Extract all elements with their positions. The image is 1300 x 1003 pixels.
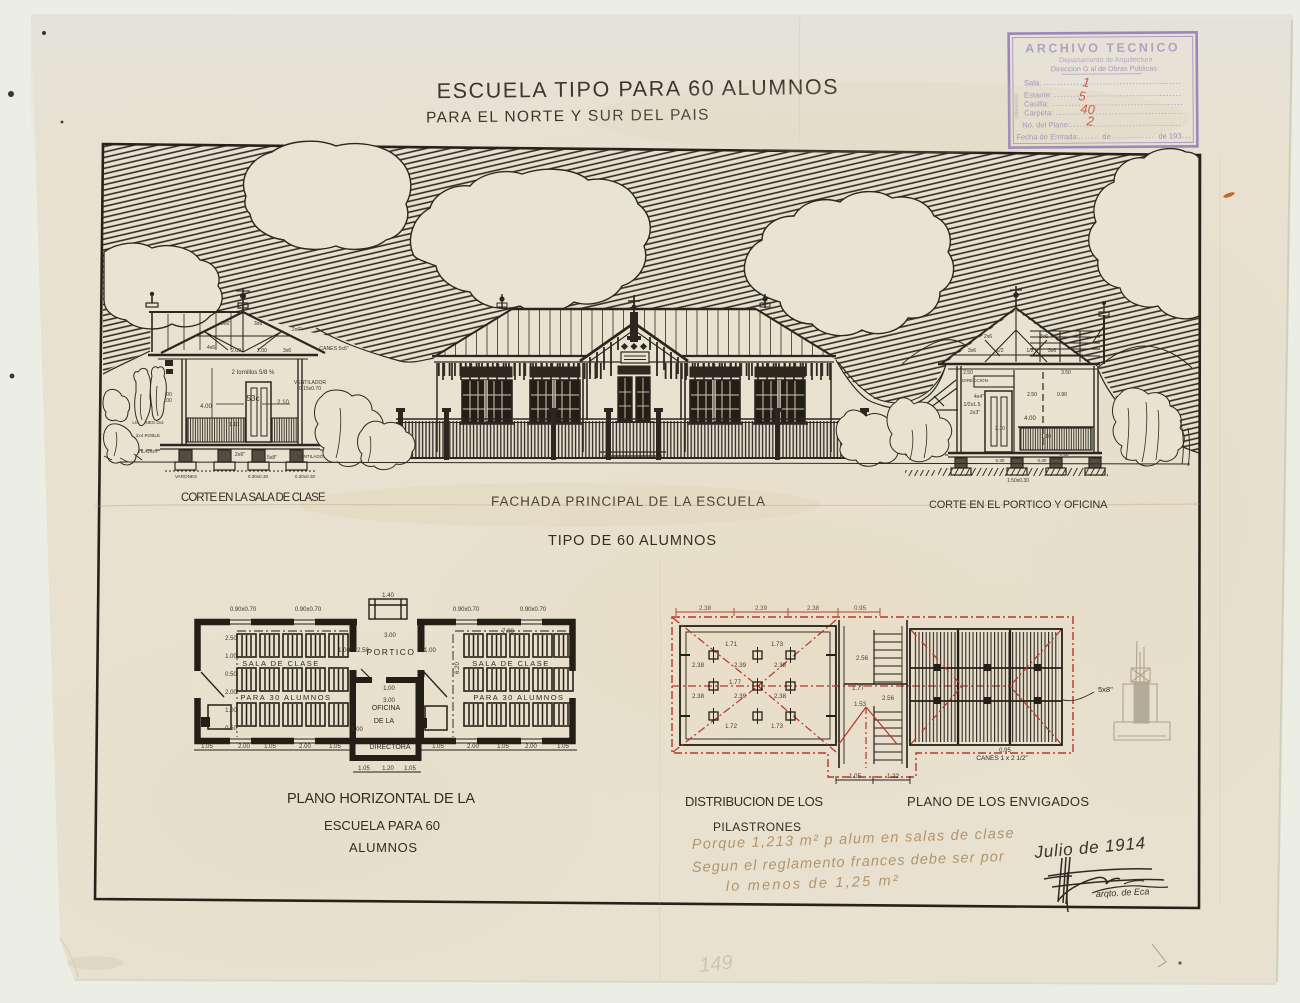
svg-text:1.00: 1.00 [225, 654, 237, 660]
svg-text:6.20: 6.20 [455, 662, 461, 674]
svg-text:149: 149 [698, 952, 733, 977]
svg-text:2.5x8": 2.5x8" [263, 455, 277, 461]
svg-text:0.15x0.70: 0.15x0.70 [299, 386, 321, 392]
svg-text:0.50: 0.50 [225, 726, 237, 732]
svg-text:CANES 5x6": CANES 5x6" [319, 346, 349, 352]
svg-text:2x3": 2x3" [970, 410, 980, 416]
svg-text:2.00: 2.00 [225, 690, 237, 696]
svg-text:0.90x0.70: 0.90x0.70 [453, 607, 480, 613]
svg-text:3x6: 3x6 [1048, 348, 1056, 354]
svg-text:2x4 ROBLE: 2x4 ROBLE [136, 433, 160, 438]
svg-text:2x6": 2x6" [292, 327, 302, 333]
svg-text:CANES 1 x 2 1/2": CANES 1 x 2 1/2" [976, 755, 1028, 762]
svg-text:OFICINA: OFICINA [372, 705, 401, 712]
svg-text:DIRECCION: DIRECCION [962, 378, 988, 383]
svg-text:1.00: 1.00 [338, 648, 350, 654]
svg-text:0.60: 0.60 [1060, 452, 1069, 457]
svg-text:3x6: 3x6 [968, 348, 976, 354]
svg-text:2.00: 2.00 [238, 744, 250, 750]
svg-text:1.72: 1.72 [725, 723, 738, 730]
svg-text:1.00: 1.00 [424, 648, 436, 654]
svg-text:1/2: 1/2 [996, 348, 1003, 354]
svg-text:2.38: 2.38 [807, 605, 820, 612]
svg-text:3.00: 3.00 [384, 633, 396, 639]
svg-text:0.95: 0.95 [854, 605, 867, 612]
svg-text:0.90x0.70: 0.90x0.70 [230, 607, 257, 613]
svg-text:0.90x0.70: 0.90x0.70 [295, 607, 322, 613]
svg-text:2.00: 2.00 [231, 348, 241, 354]
svg-text:PLANO HORIZONTAL DE LA: PLANO HORIZONTAL DE LA [287, 791, 477, 807]
svg-text:0.95: 0.95 [999, 748, 1011, 754]
svg-text:1.05: 1.05 [201, 744, 213, 750]
svg-text:1.05: 1.05 [264, 744, 276, 750]
svg-text:2x6": 2x6" [235, 452, 246, 458]
svg-text:2.56: 2.56 [882, 695, 895, 702]
svg-text:TIPO DE 60 ALUMNOS: TIPO DE 60 ALUMNOS [548, 533, 718, 549]
svg-text:2.10: 2.10 [277, 400, 289, 406]
svg-text:DIRECTORA: DIRECTORA [369, 744, 410, 751]
svg-text:DE LA: DE LA [374, 718, 395, 725]
svg-text:4.00: 4.00 [1024, 416, 1036, 422]
svg-text:2.50: 2.50 [1027, 392, 1037, 398]
svg-text:1.40: 1.40 [382, 593, 394, 599]
svg-text:PARA 30 ALUMNOS: PARA 30 ALUMNOS [473, 693, 564, 702]
svg-text:1.10: 1.10 [1041, 434, 1051, 440]
svg-text:4.00: 4.00 [200, 404, 212, 410]
svg-text:1.05: 1.05 [849, 773, 862, 780]
svg-text:2.38: 2.38 [692, 693, 705, 700]
svg-text:3.50: 3.50 [1061, 370, 1071, 376]
svg-text:3.00: 3.00 [383, 698, 395, 704]
svg-text:1.22: 1.22 [887, 773, 900, 780]
svg-text:0.30: 0.30 [996, 458, 1005, 463]
svg-text:3x6: 3x6 [283, 348, 291, 354]
svg-text:1.05: 1.05 [358, 766, 370, 772]
svg-text:1.73: 1.73 [771, 641, 784, 648]
svg-text:1.20: 1.20 [382, 766, 394, 772]
svg-text:1/2: 1/2 [1026, 348, 1033, 354]
svg-text:VARONES: VARONES [175, 474, 197, 479]
svg-text:PORTICO: PORTICO [366, 647, 415, 657]
svg-text:7.00: 7.00 [502, 629, 514, 635]
svg-text:2.00: 2.00 [299, 744, 311, 750]
svg-text:2.38: 2.38 [699, 605, 712, 612]
svg-text:4x6: 4x6 [207, 345, 215, 351]
svg-text:1.50x0.30: 1.50x0.30 [1007, 478, 1029, 484]
svg-text:2 tornillos 5/8 %: 2 tornillos 5/8 % [232, 370, 275, 376]
svg-text:PILASTRONES: PILASTRONES [713, 820, 803, 834]
svg-text:Direccion G al de Obras Pu: Direccion G al de Obras Publicas [1051, 64, 1157, 74]
svg-text:DISTRIBUCION DE LOS: DISTRIBUCION DE LOS [685, 794, 825, 809]
svg-text:1.77: 1.77 [852, 685, 865, 692]
svg-text:1.05: 1.05 [497, 744, 509, 750]
svg-text:2.00: 2.00 [525, 744, 537, 750]
svg-text:1.05: 1.05 [432, 744, 444, 750]
svg-text:2.39: 2.39 [734, 662, 747, 669]
svg-text:2x6: 2x6 [984, 334, 992, 340]
svg-text:3x6: 3x6 [1040, 334, 1048, 340]
svg-text:1/2x1.5: 1/2x1.5 [963, 402, 980, 408]
svg-text:1.53: 1.53 [854, 701, 867, 708]
svg-text:SALA DE CLASE: SALA DE CLASE [242, 659, 319, 668]
svg-text:1.05: 1.05 [404, 766, 416, 772]
svg-text:2.50: 2.50 [225, 636, 237, 642]
svg-text:1.05: 1.05 [329, 744, 341, 750]
svg-text:2.00: 2.00 [467, 744, 479, 750]
svg-text:1.71: 1.71 [725, 641, 738, 648]
svg-text:ALUMNOS: ALUMNOS [349, 840, 419, 855]
svg-text:2.38: 2.38 [774, 662, 787, 669]
svg-text:1.00: 1.00 [225, 708, 237, 714]
svg-text:2.56: 2.56 [856, 655, 869, 662]
svg-text:5x8": 5x8" [1098, 685, 1113, 694]
svg-text:3x6": 3x6" [254, 321, 264, 327]
svg-text:4x4": 4x4" [974, 394, 984, 400]
svg-text:2.39: 2.39 [755, 605, 768, 612]
svg-text:0.90x0.70: 0.90x0.70 [520, 607, 547, 613]
svg-text:1.77: 1.77 [729, 679, 742, 686]
svg-text:ARCHIVO TECNICO: ARCHIVO TECNICO [1025, 40, 1180, 55]
svg-text:0.30x0.30: 0.30x0.30 [248, 474, 269, 479]
svg-text:53c: 53c [247, 394, 260, 403]
svg-text:0.30: 0.30 [1038, 458, 1047, 463]
svg-text:ESCUELA PARA 60: ESCUELA PARA 60 [324, 818, 442, 833]
svg-text:2.50: 2.50 [963, 370, 973, 376]
svg-text:0.30x0.30: 0.30x0.30 [295, 474, 316, 479]
svg-text:2.50: 2.50 [357, 648, 369, 654]
svg-text:0.50: 0.50 [225, 672, 237, 678]
svg-text:2.38: 2.38 [692, 662, 705, 669]
svg-text:3x6": 3x6" [221, 321, 231, 327]
svg-text:2.38: 2.38 [774, 693, 787, 700]
svg-text:PLANO DE LOS ENVIGADOS: PLANO DE LOS ENVIGADOS [907, 794, 1091, 809]
svg-text:SALA DE CLASE: SALA DE CLASE [472, 659, 549, 668]
svg-text:1.10: 1.10 [229, 422, 239, 428]
svg-text:3.00: 3.00 [351, 727, 363, 733]
svg-text:1.05: 1.05 [557, 744, 569, 750]
svg-text:2.00: 2.00 [257, 348, 267, 354]
svg-text:2.10: 2.10 [995, 426, 1005, 432]
svg-text:2.39: 2.39 [734, 693, 747, 700]
svg-text:1.73: 1.73 [771, 723, 784, 730]
svg-text:PARA 30 ALUMNOS: PARA 30 ALUMNOS [240, 693, 331, 702]
svg-text:1.00: 1.00 [383, 686, 395, 692]
svg-text:0.90: 0.90 [1057, 392, 1067, 398]
